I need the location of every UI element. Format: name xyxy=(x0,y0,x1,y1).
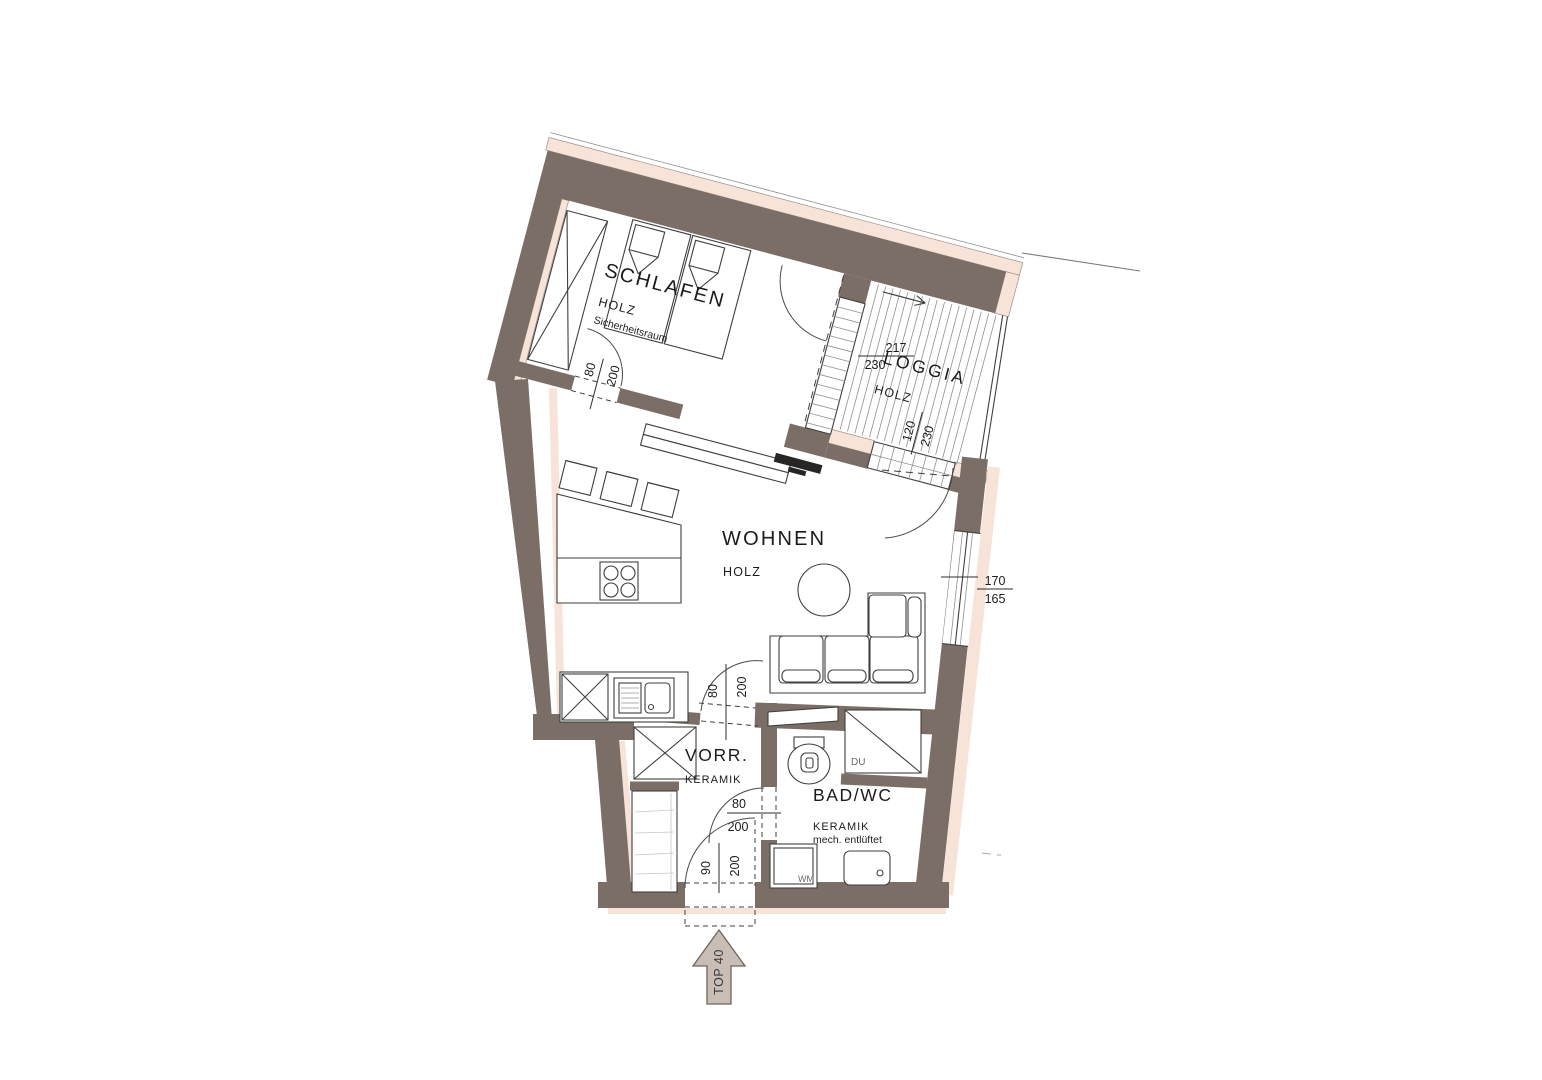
vorr-door-width: 80 xyxy=(706,684,720,698)
toilet xyxy=(788,737,830,784)
floorplan-drawing: 80 200 120 230 SCHLAFEN HOLZ Sicherheits… xyxy=(0,0,1542,1080)
slider-height: 230 xyxy=(865,358,886,372)
bad-material: KERAMIK xyxy=(813,821,870,833)
wall-shower-stub xyxy=(841,779,927,783)
floorplan-page: 80 200 120 230 SCHLAFEN HOLZ Sicherheits… xyxy=(0,0,1542,1080)
wohnen-label: WOHNEN xyxy=(722,528,826,550)
window-width: 170 xyxy=(985,574,1006,588)
kitchen-counter xyxy=(560,672,688,722)
wohnen-material: HOLZ xyxy=(723,565,761,579)
shower-label: DU xyxy=(851,757,865,768)
unit-arrow-label: TOP 40 xyxy=(712,949,726,995)
washbasin xyxy=(844,851,890,885)
bad-door-width: 80 xyxy=(732,797,746,811)
vorr-material: KERAMIK xyxy=(685,774,742,786)
bad-note: mech. entlüftet xyxy=(813,834,882,846)
washing-machine-label: WM xyxy=(798,874,814,884)
vorr-door-height: 200 xyxy=(735,677,749,698)
entrance-door-width: 90 xyxy=(699,861,713,875)
window-height: 165 xyxy=(985,592,1006,606)
coffee-table xyxy=(798,564,850,616)
wall-vorr-west xyxy=(607,739,620,897)
sink xyxy=(614,678,674,718)
slider-width: 217 xyxy=(886,341,907,355)
bad-label: BAD/WC xyxy=(813,785,893,805)
vorr-label: VORR. xyxy=(685,745,748,765)
entrance-door-height: 200 xyxy=(728,856,742,877)
vorr-wardrobe xyxy=(632,791,677,892)
